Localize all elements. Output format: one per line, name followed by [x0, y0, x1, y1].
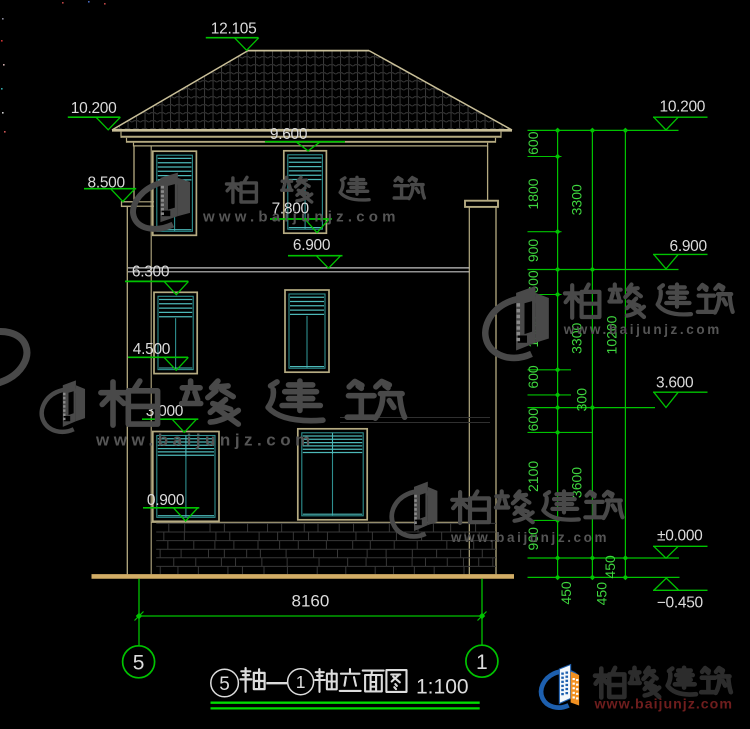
svg-text:600: 600 [525, 408, 541, 432]
svg-text:www.baijunjz.com: www.baijunjz.com [450, 530, 609, 545]
svg-text:www.baijunjz.com: www.baijunjz.com [594, 697, 733, 713]
svg-text:10.200: 10.200 [71, 100, 117, 117]
svg-text:5: 5 [133, 652, 145, 675]
svg-text:450: 450 [602, 555, 618, 579]
svg-text:8160: 8160 [292, 592, 330, 611]
svg-text:www.baijunjz.com: www.baijunjz.com [95, 431, 315, 450]
svg-text:www.baijunjz.com: www.baijunjz.com [202, 209, 400, 226]
svg-text:300: 300 [573, 388, 589, 412]
svg-text:1: 1 [476, 651, 488, 674]
svg-text:12.105: 12.105 [211, 21, 257, 38]
svg-text:6.900: 6.900 [670, 238, 708, 255]
svg-text:3.600: 3.600 [656, 375, 694, 392]
svg-text:450: 450 [558, 581, 574, 605]
svg-text:−0.450: −0.450 [657, 595, 704, 612]
svg-text:1:100: 1:100 [416, 676, 469, 699]
svg-text:www.baijunjz.com: www.baijunjz.com [563, 322, 722, 337]
svg-text:900: 900 [525, 239, 541, 263]
svg-text:±0.000: ±0.000 [657, 528, 703, 545]
svg-text:5: 5 [219, 674, 230, 695]
svg-text:1: 1 [296, 672, 306, 692]
svg-text:6.300: 6.300 [132, 264, 170, 281]
svg-text:6.900: 6.900 [293, 237, 331, 254]
svg-text:4.500: 4.500 [133, 341, 171, 358]
svg-text:9.600: 9.600 [270, 126, 308, 143]
svg-text:1800: 1800 [525, 178, 541, 209]
svg-text:2100: 2100 [525, 461, 541, 492]
svg-text:10.200: 10.200 [660, 99, 706, 116]
svg-text:3300: 3300 [569, 184, 585, 215]
svg-text:0.900: 0.900 [147, 492, 185, 509]
svg-text:450: 450 [593, 582, 609, 606]
svg-text:600: 600 [525, 131, 541, 155]
svg-text:600: 600 [525, 365, 541, 389]
